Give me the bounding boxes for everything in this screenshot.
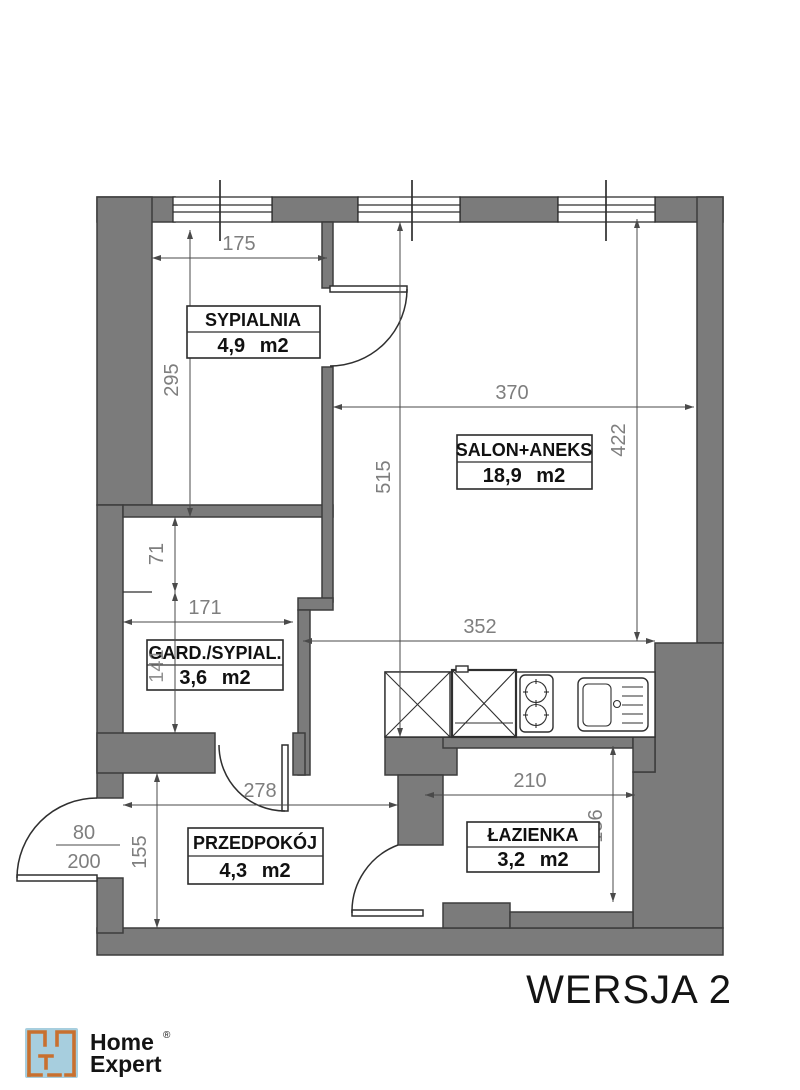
wall-segment bbox=[322, 222, 333, 288]
dimension-sypialnia-width: 175 bbox=[152, 233, 327, 258]
svg-text:200: 200 bbox=[67, 851, 100, 873]
windows bbox=[173, 180, 655, 241]
svg-text:SALON+ANEKS: SALON+ANEKS bbox=[456, 440, 593, 460]
wall-segment bbox=[443, 737, 633, 748]
wall-segment bbox=[97, 878, 123, 933]
room-labels: SYPIALNIA 4,9 m2 SALON+ANEKS 18,9 m2 GAR… bbox=[147, 306, 599, 884]
svg-text:210: 210 bbox=[513, 770, 546, 792]
sink-symbol bbox=[578, 678, 648, 731]
dimension-entry-door: 80 200 bbox=[56, 822, 120, 873]
wall-segment bbox=[443, 903, 510, 928]
appliance-symbol bbox=[452, 666, 516, 737]
wall-segment bbox=[322, 367, 333, 602]
svg-text:71: 71 bbox=[146, 543, 168, 565]
svg-text:352: 352 bbox=[463, 616, 496, 638]
dimension-sypialnia-height: 295 bbox=[161, 230, 190, 517]
svg-text:SYPIALNIA: SYPIALNIA bbox=[205, 310, 301, 330]
wall-segment bbox=[697, 197, 723, 643]
svg-text:PRZEDPOKÓJ: PRZEDPOKÓJ bbox=[193, 832, 317, 853]
wall-segment bbox=[510, 912, 633, 928]
wall-segment bbox=[97, 733, 215, 773]
svg-text:175: 175 bbox=[222, 233, 255, 255]
dimension-przedpokoj-height: 155 bbox=[129, 773, 157, 928]
dimension-przedpokoj-width: 278 bbox=[123, 780, 398, 805]
room-label-lazienka: ŁAZIENKA 3,2 m2 bbox=[467, 822, 599, 872]
floor-plan-page: 175 295 370 422 515 71 171 352 bbox=[0, 0, 800, 1090]
dimension-salon-right-height: 422 bbox=[608, 219, 637, 641]
svg-text:GARD./SYPIAL.: GARD./SYPIAL. bbox=[148, 643, 281, 663]
svg-text:295: 295 bbox=[161, 363, 183, 396]
room-label-salon: SALON+ANEKS 18,9 m2 bbox=[456, 435, 593, 489]
svg-text:155: 155 bbox=[129, 835, 151, 868]
window bbox=[173, 180, 272, 241]
stove-symbol bbox=[520, 675, 553, 732]
svg-text:171: 171 bbox=[188, 597, 221, 619]
dimension-salon-full-height: 515 bbox=[373, 222, 400, 737]
version-title: WERSJA 2 bbox=[526, 968, 732, 1012]
wall-segment bbox=[293, 733, 305, 775]
svg-text:422: 422 bbox=[608, 423, 630, 456]
wall-segment bbox=[460, 197, 558, 222]
logo-text-line2: Expert bbox=[90, 1051, 162, 1077]
wall-segment bbox=[97, 928, 723, 955]
room-label-przedpokoj: PRZEDPOKÓJ 4,3 m2 bbox=[188, 828, 323, 884]
svg-text:370: 370 bbox=[495, 382, 528, 404]
bedroom-door bbox=[330, 286, 407, 366]
home-expert-logo: Home Expert ® bbox=[25, 1028, 171, 1078]
floor-plan-svg: 175 295 370 422 515 71 171 352 bbox=[0, 0, 800, 1090]
dimension-kitchen-width: 352 bbox=[303, 616, 655, 641]
svg-text:515: 515 bbox=[373, 460, 395, 493]
wall-segment bbox=[398, 775, 443, 845]
svg-text:3,2 m2: 3,2 m2 bbox=[497, 849, 568, 871]
window bbox=[358, 180, 460, 241]
svg-text:3,6 m2: 3,6 m2 bbox=[179, 667, 250, 689]
svg-text:80: 80 bbox=[73, 822, 95, 844]
dimension-salon-width: 370 bbox=[333, 382, 694, 407]
svg-text:141: 141 bbox=[146, 649, 168, 682]
bathroom-door bbox=[352, 845, 423, 916]
svg-text:18,9 m2: 18,9 m2 bbox=[483, 465, 565, 487]
wall-segment bbox=[272, 197, 358, 222]
window bbox=[558, 180, 655, 241]
logo-plate bbox=[25, 1028, 78, 1078]
wall-segment bbox=[298, 598, 333, 610]
svg-text:278: 278 bbox=[243, 780, 276, 802]
wall-segment bbox=[633, 737, 655, 772]
cabinet-symbol bbox=[385, 672, 450, 737]
dimension-gard-width: 171 bbox=[123, 597, 293, 622]
registered-mark: ® bbox=[163, 1030, 171, 1041]
wall-segment bbox=[123, 505, 333, 517]
room-label-sypialnia: SYPIALNIA 4,9 m2 bbox=[187, 306, 320, 358]
svg-text:ŁAZIENKA: ŁAZIENKA bbox=[488, 825, 579, 845]
dimension-gard-top-offset: 71 bbox=[146, 517, 175, 592]
kitchen-counter bbox=[385, 666, 655, 737]
svg-text:4,9 m2: 4,9 m2 bbox=[217, 335, 288, 357]
svg-text:4,3 m2: 4,3 m2 bbox=[219, 860, 290, 882]
wall-segment bbox=[97, 197, 152, 505]
